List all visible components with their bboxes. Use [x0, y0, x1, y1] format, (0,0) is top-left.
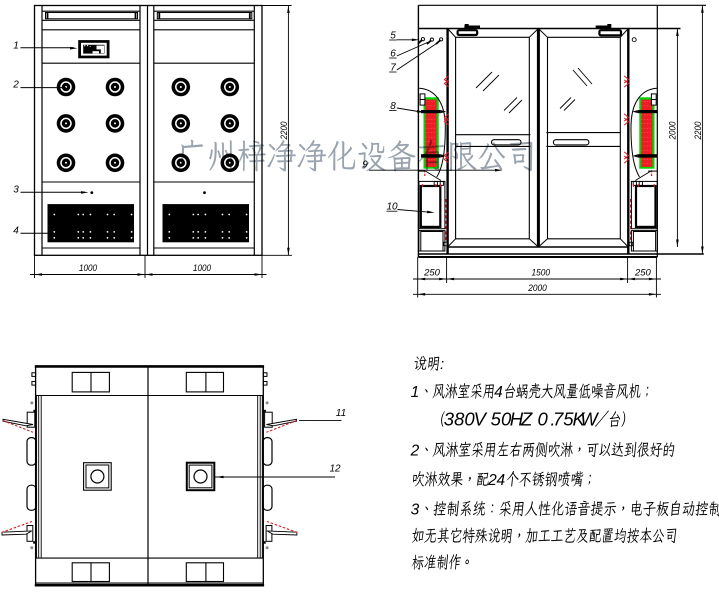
- svg-text:250: 250: [423, 268, 441, 279]
- svg-text:3: 3: [13, 185, 19, 196]
- svg-text:4: 4: [496, 472, 505, 489]
- svg-text::: :: [440, 356, 444, 373]
- svg-text:2000: 2000: [527, 283, 547, 294]
- svg-text:2200: 2200: [279, 121, 290, 140]
- svg-text:0: 0: [538, 409, 549, 430]
- svg-text:1000: 1000: [193, 263, 212, 274]
- svg-text:2000: 2000: [668, 121, 679, 140]
- svg-text:2: 2: [410, 443, 420, 460]
- svg-text:1: 1: [411, 384, 420, 401]
- svg-text:W: W: [580, 409, 599, 430]
- svg-text:4: 4: [13, 226, 19, 237]
- svg-text:2200: 2200: [693, 121, 704, 140]
- svg-text:250: 250: [634, 268, 652, 279]
- svg-text:11: 11: [336, 408, 346, 419]
- svg-text:3: 3: [411, 502, 420, 519]
- svg-text:1: 1: [13, 41, 19, 52]
- svg-text:12: 12: [329, 464, 341, 475]
- svg-text:1500: 1500: [532, 268, 551, 279]
- svg-text:1000: 1000: [79, 263, 98, 274]
- svg-text:2: 2: [12, 80, 19, 91]
- svg-text:Z: Z: [520, 409, 533, 430]
- svg-text:4: 4: [494, 384, 503, 401]
- svg-text:V: V: [474, 409, 488, 430]
